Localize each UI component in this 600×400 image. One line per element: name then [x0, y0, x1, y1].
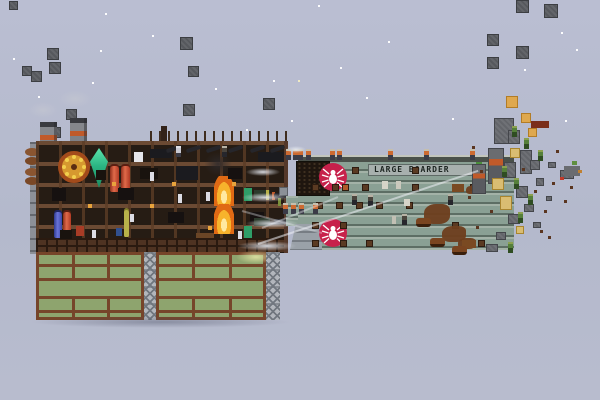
gun-smoke	[242, 193, 288, 202]
gun-smoke	[286, 146, 306, 153]
gun-smoke	[246, 219, 298, 228]
gun-smoke	[238, 241, 296, 251]
chimney-smoke	[28, 102, 58, 118]
chimney-smoke	[58, 90, 92, 108]
gun-smoke	[246, 168, 280, 176]
effects-layer	[0, 0, 600, 400]
projectile-trail	[258, 170, 479, 245]
game-scene: LARGE BOARDER	[0, 0, 600, 400]
